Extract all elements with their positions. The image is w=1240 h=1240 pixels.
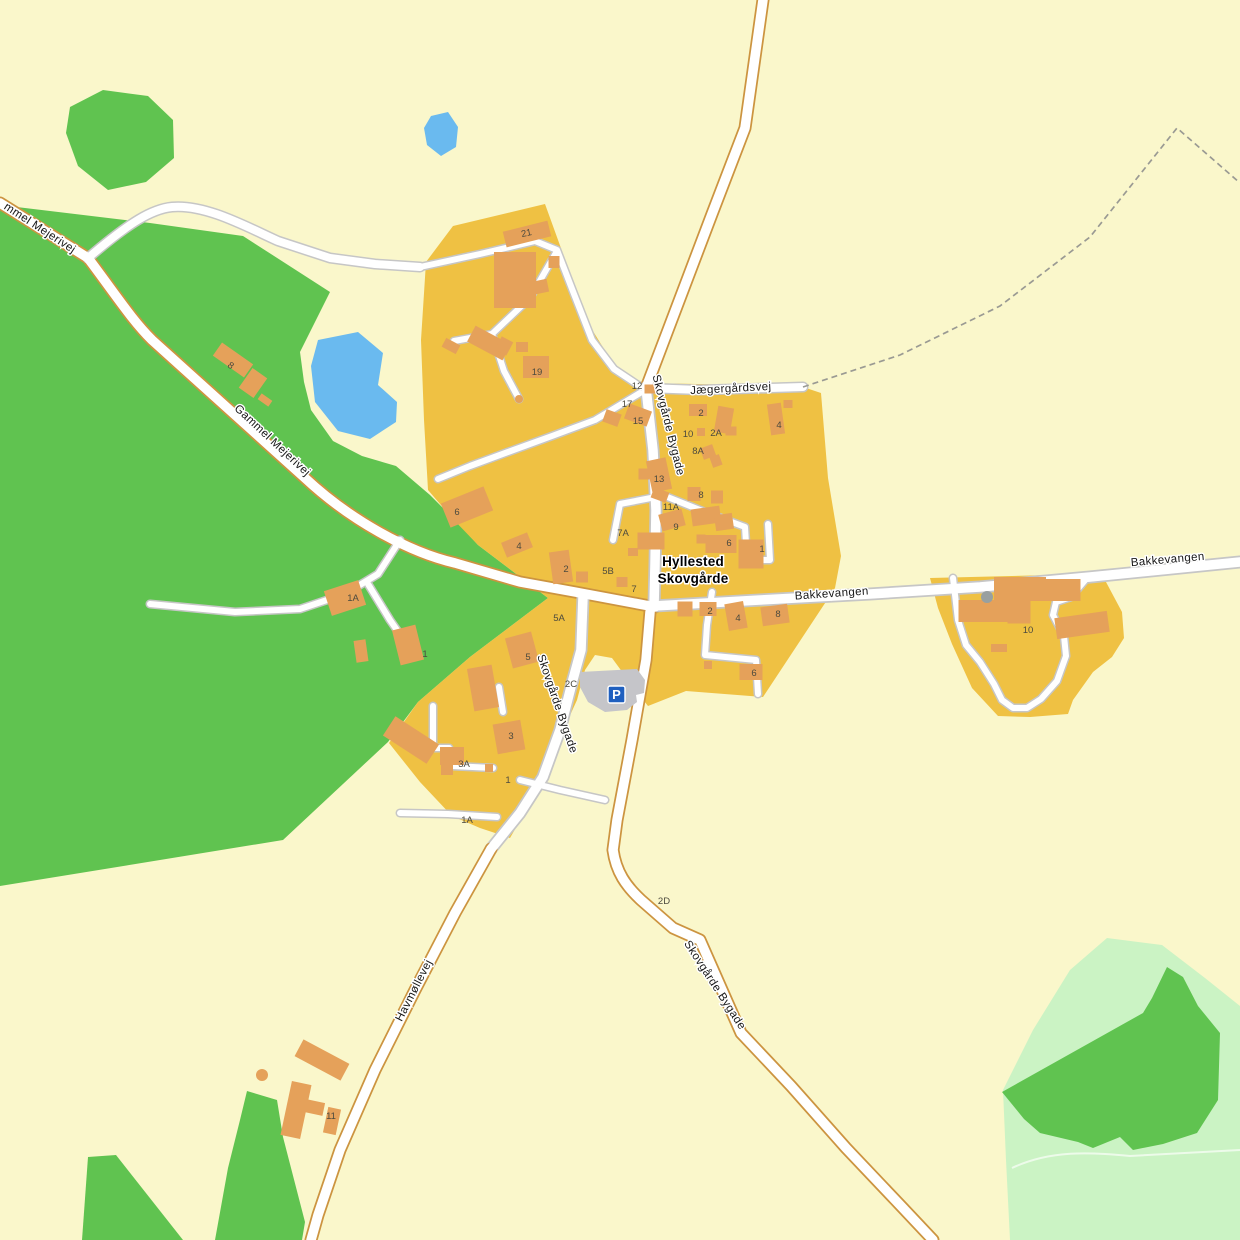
house-number-label: 6 [726,538,731,549]
house-number-label: 6 [454,507,459,518]
building [549,256,560,268]
house-number-label: 3A [458,759,470,770]
house-number-label: 1A [347,593,359,604]
building [726,427,737,436]
building [441,763,453,775]
house-number-label: 11 [326,1111,336,1122]
house-number-label: 7 [631,584,636,595]
building [706,535,737,553]
house-number-label: 7A [617,528,629,539]
house-number-label: 11A [663,502,680,513]
town-name-label: Skovgårde [658,571,729,586]
map-svg[interactable]: P mmel MejerivejGammel MejerivejSkovgård… [0,0,1240,1240]
house-number-label: 2 [707,606,712,617]
building [714,513,734,531]
house-number-label: 6 [751,668,756,679]
building [711,491,723,504]
building [1046,579,1081,601]
house-number-label: 8A [692,446,704,457]
house-number-label: 4 [516,541,521,552]
house-number-label: 8 [775,609,780,620]
house-number-label: 10 [683,429,694,440]
building [959,600,1008,622]
house-number-label: 4 [735,613,740,624]
house-number-label: 17 [622,399,633,410]
building [628,548,638,556]
building [1008,597,1031,624]
house-number-label: 9 [673,522,678,533]
parking-icon: P [608,686,625,703]
building [678,602,693,617]
house-number-label: 1 [759,544,764,555]
house-number-label: 1A [461,815,473,826]
map-canvas[interactable]: P mmel MejerivejGammel MejerivejSkovgård… [0,0,1240,1240]
building [697,428,705,436]
building [784,400,793,408]
building [617,577,628,587]
house-number-label: 4 [776,420,781,431]
house-number-label: 12 [632,381,643,392]
drive-3 [499,687,503,712]
building [697,535,706,544]
house-number-label: 13 [654,474,665,485]
building [516,342,528,352]
parking-icon-letter: P [612,687,621,702]
building [639,469,650,480]
house-number-label: 21 [520,227,533,240]
building [485,764,493,772]
house-number-label: 5 [525,652,530,663]
house-number-label: 1 [505,775,510,786]
building-circle [515,395,523,403]
house-number-label: 5A [553,613,565,624]
building [638,533,665,550]
house-number-label: 2 [563,564,568,575]
house-number-label: 2C [565,679,577,690]
house-number-label: 8 [698,490,703,501]
house-number-label: 19 [532,367,543,378]
building [494,252,536,308]
building [576,572,588,583]
house-number-label: 10 [1023,625,1034,636]
building [704,661,712,669]
house-number-label: 5B [602,566,614,577]
house-number-label: 1 [422,649,427,660]
building-circle [256,1069,268,1081]
house-number-label: 3 [508,731,513,742]
town-name-label: Hyllested [662,554,724,569]
house-number-label: 2A [710,428,722,439]
building [991,644,1007,652]
house-number-label: 15 [633,416,644,427]
house-number-label: 2 [698,408,703,419]
silo-circle [981,591,993,603]
house-number-label: 2D [658,896,670,907]
